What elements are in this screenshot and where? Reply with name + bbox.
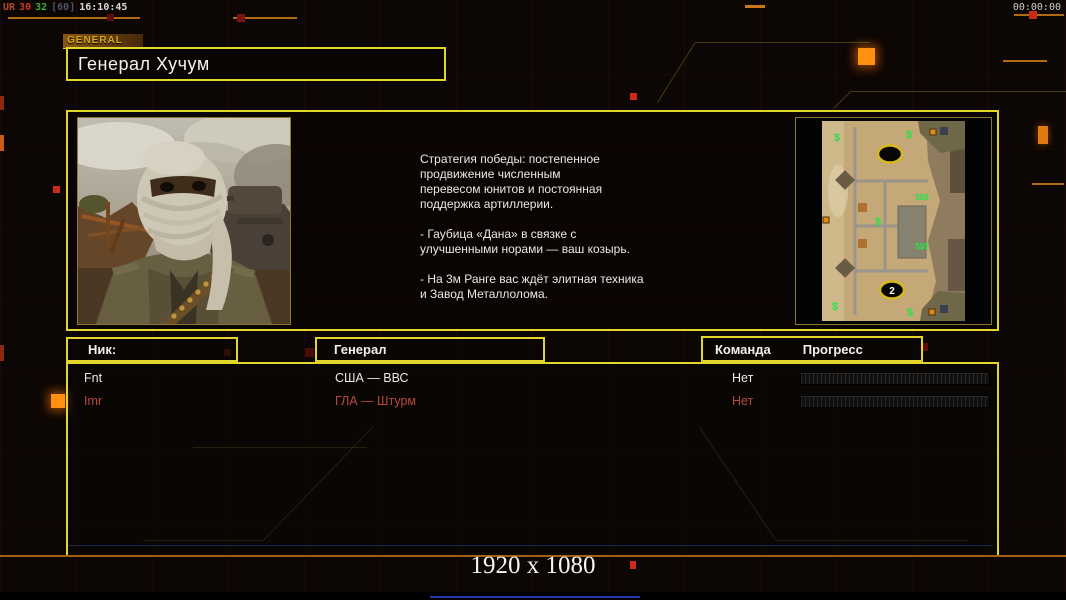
perf-label: UR (3, 2, 15, 13)
deco-square (51, 394, 65, 408)
match-timer: 00:00:00 (1013, 2, 1061, 13)
deco-line (833, 90, 852, 109)
divider (68, 545, 993, 546)
general-header-label: Генерал (334, 342, 386, 357)
deco-square (237, 14, 245, 22)
players-panel: Fnt США — ВВС Нет Imr ГЛА — Штурм Нет (66, 362, 999, 557)
minimap-start-2-label: 2 (889, 286, 895, 297)
deco-square (107, 14, 114, 21)
progress-header-label: Прогресс (803, 342, 863, 357)
divider (745, 5, 765, 8)
column-header-nick: Ник: (66, 337, 238, 362)
supply-cluster-icon: $$$ (915, 193, 929, 202)
perf-cap: [60] (51, 2, 75, 13)
team-header-label: Команда (715, 342, 771, 357)
deco-line (852, 91, 1066, 92)
minimap-image: 2 $ $ $ $ $ $$$ $$$ (822, 121, 965, 321)
perf-clock: 16:10:45 (79, 2, 127, 13)
divider (1032, 183, 1064, 185)
perf-update-rate: 30 (19, 2, 31, 13)
supply-icon: $ (875, 216, 881, 228)
nick-header-label: Ник: (88, 342, 116, 357)
supply-icon: $ (832, 301, 838, 313)
divider (233, 17, 297, 19)
player-team: Нет (732, 371, 753, 385)
oil-derrick-icon (930, 129, 936, 135)
general-portrait (77, 117, 291, 325)
progress-bar (800, 372, 990, 385)
deco-square (1038, 126, 1048, 144)
supply-icon: $ (907, 307, 913, 319)
portrait-image (78, 118, 290, 324)
supply-icon: $ (834, 132, 840, 144)
resolution-label: 1920 x 1080 (0, 552, 1066, 580)
divider (430, 596, 640, 598)
perf-render-rate: 32 (35, 2, 47, 13)
divider (8, 17, 140, 19)
deco-square (0, 345, 4, 361)
deco-square (0, 96, 4, 110)
general-info-panel: Стратегия победы: постепенное продвижени… (66, 110, 999, 331)
page-title-box: Генерал Хучум (66, 47, 446, 81)
briefing-text: Стратегия победы: постепенное продвижени… (420, 152, 700, 302)
player-general: США — ВВС (335, 371, 409, 385)
deco-square (0, 135, 4, 151)
player-row: Fnt США — ВВС Нет (68, 368, 997, 390)
page-title: Генерал Хучум (78, 54, 210, 75)
deco-line (696, 42, 870, 43)
deco-square (53, 186, 60, 193)
screen: UR3032[60]16:10:45 00:00:00 GENERAL Гене… (0, 0, 1066, 600)
divider (1003, 60, 1047, 62)
oil-derrick-icon (929, 309, 935, 315)
progress-bar (800, 395, 990, 408)
player-nick: Imr (84, 394, 102, 408)
minimap: 2 $ $ $ $ $ $$$ $$$ (795, 117, 992, 325)
divider (1014, 14, 1064, 16)
supply-cluster-icon: $$$ (915, 242, 929, 251)
deco-line (657, 41, 696, 103)
deco-square (305, 348, 314, 357)
deco-square (630, 93, 637, 100)
player-row: Imr ГЛА — Штурм Нет (68, 391, 997, 413)
oil-derrick-icon (823, 217, 829, 223)
column-header-team-progress: Команда Прогресс (701, 336, 923, 362)
supply-icon: $ (906, 129, 912, 141)
deco-square (858, 48, 875, 65)
performance-overlay: UR3032[60]16:10:45 (3, 2, 131, 13)
column-header-general: Генерал (315, 337, 545, 362)
player-nick: Fnt (84, 371, 102, 385)
player-general: ГЛА — Штурм (335, 394, 416, 408)
player-team: Нет (732, 394, 753, 408)
